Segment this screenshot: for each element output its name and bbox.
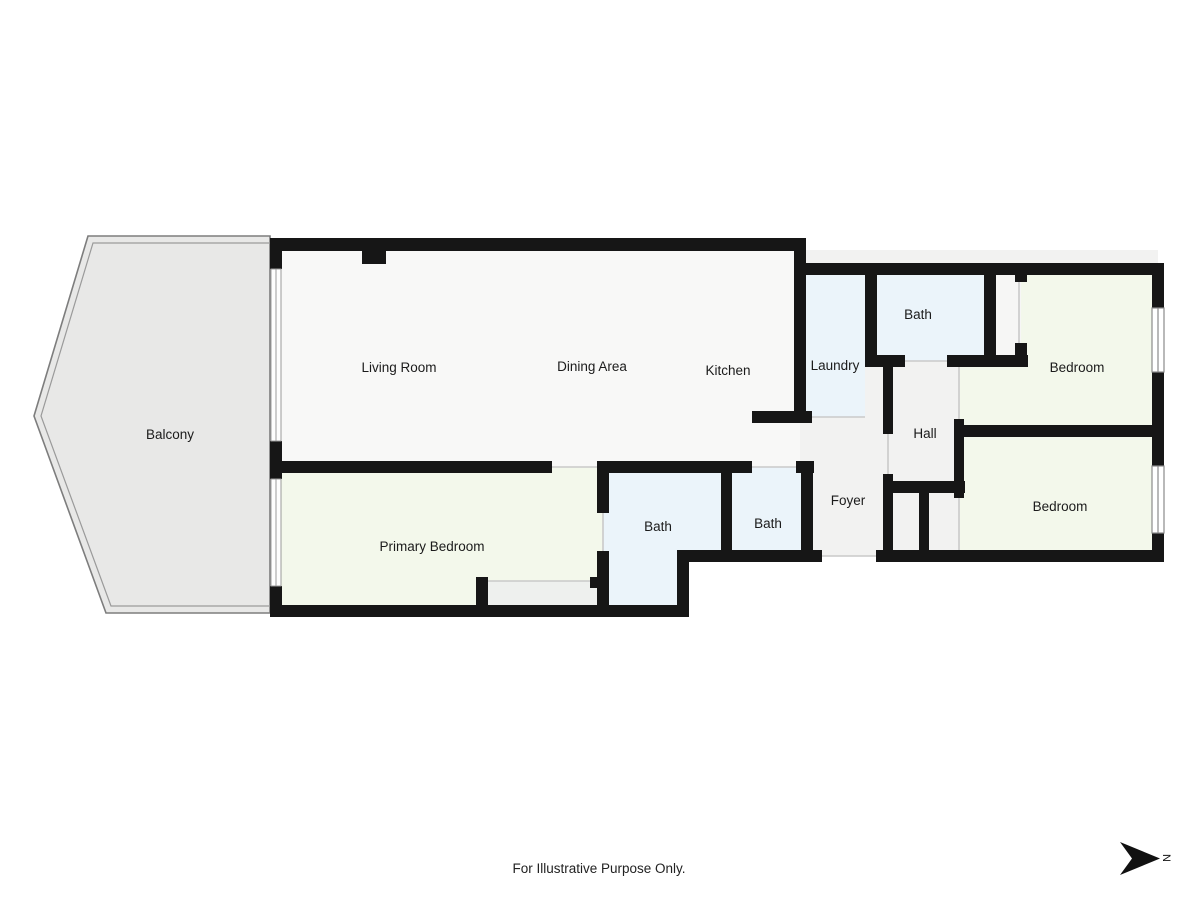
window-balcony-lower <box>271 479 281 586</box>
wall-laundry-bottom <box>752 411 812 423</box>
disclaimer-text: For Illustrative Purpose Only. <box>512 861 685 876</box>
living-room-label: Living Room <box>361 360 436 375</box>
bedroom-bottom-floor <box>960 437 1158 556</box>
wall-top-right <box>794 263 1164 275</box>
primary-bedroom-label: Primary Bedroom <box>379 539 484 554</box>
wall-primary-closet-stub-a <box>476 577 488 610</box>
wall-right-b <box>1152 372 1164 466</box>
north-arrow-label: N <box>1160 854 1172 862</box>
floor-plan-svg: Balcony Living Room Dining Area Kitchen … <box>0 0 1200 900</box>
wall-hall-right-stub <box>954 550 964 562</box>
wall-hall-left-a <box>883 355 893 434</box>
wall-closet-stub-b <box>1015 343 1027 361</box>
primary-closet-floor <box>488 581 597 607</box>
bedroom-top-label: Bedroom <box>1050 360 1105 375</box>
hall-label: Hall <box>913 426 936 441</box>
north-arrow-icon <box>1120 842 1160 875</box>
bath-second-label: Bath <box>754 516 782 531</box>
wall-left-b <box>270 441 282 479</box>
wall-living-primary <box>282 461 552 473</box>
wall-kitchen-laundry <box>794 240 806 423</box>
balcony-label: Balcony <box>146 427 194 442</box>
wall-closets-divider <box>919 493 929 553</box>
wall-top-left <box>270 238 806 251</box>
bedroom-bottom-label: Bedroom <box>1033 499 1088 514</box>
balcony-floor <box>34 236 270 613</box>
wall-left-c <box>270 586 282 617</box>
foyer-label: Foyer <box>831 493 866 508</box>
bedroom-top-floor-lower <box>960 361 1021 431</box>
laundry-label: Laundry <box>811 358 860 373</box>
window-balcony-upper <box>271 269 281 441</box>
laundry-floor <box>803 269 865 417</box>
bath-ensuite-floor <box>603 467 727 611</box>
wall-left-a <box>270 238 282 269</box>
wall-laundry-bath-divider <box>865 263 877 367</box>
balcony <box>34 236 270 613</box>
dining-area-label: Dining Area <box>557 359 627 374</box>
kitchen-label: Kitchen <box>705 363 750 378</box>
bedroom-top-floor <box>1021 269 1158 431</box>
bath-upper-label: Bath <box>904 307 932 322</box>
wall-primary-closet-stub-b <box>590 577 600 588</box>
north-arrow: N <box>1120 842 1172 875</box>
bath-second-floor <box>727 467 807 556</box>
wall-top-notch <box>362 251 386 264</box>
wall-bath-ensuite-left-a <box>597 461 609 513</box>
wall-bath-second-right <box>801 461 813 562</box>
wall-right-a <box>1152 263 1164 308</box>
wall-closet-stub-a <box>1015 263 1027 282</box>
window-right-upper <box>1152 308 1164 372</box>
wall-bath-upper-right <box>984 263 996 367</box>
wall-hall-bottom-bar <box>883 481 965 493</box>
window-right-lower <box>1152 466 1164 533</box>
floor-plan-page: Balcony Living Room Dining Area Kitchen … <box>0 0 1200 900</box>
wall-baths-divider <box>721 461 732 562</box>
bath-ensuite-label: Bath <box>644 519 672 534</box>
living-dining-kitchen-floor <box>276 244 800 468</box>
wall-bedrooms-divider <box>954 425 1164 437</box>
